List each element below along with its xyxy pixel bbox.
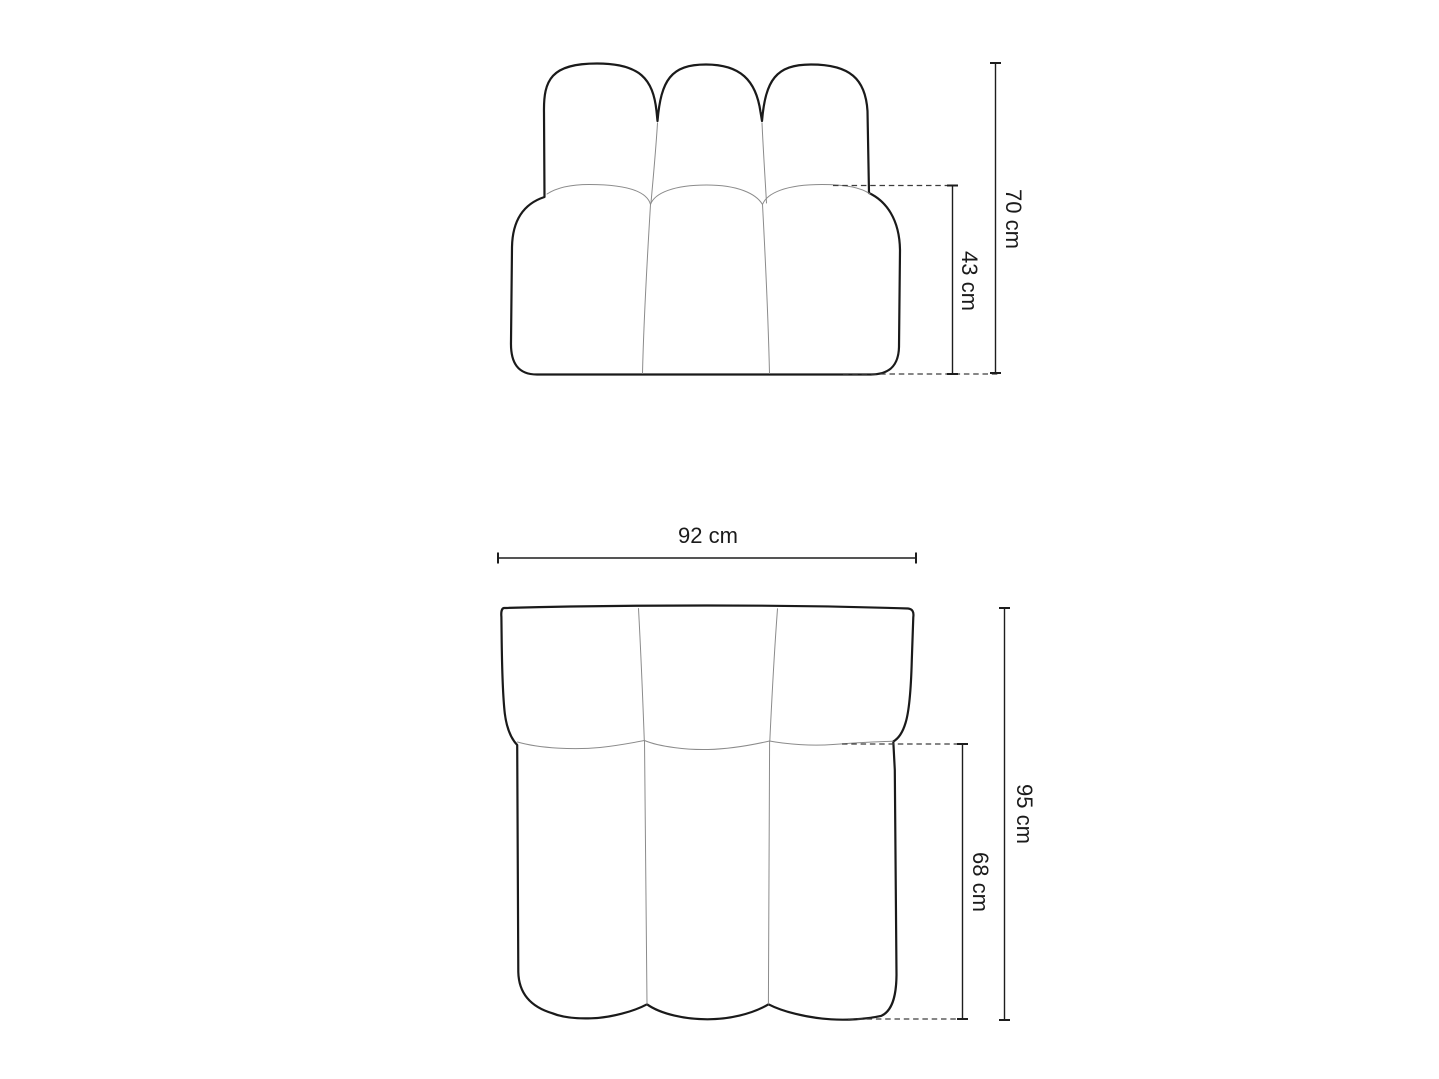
top-silhouette-outline	[501, 606, 913, 1020]
front-view	[511, 63, 1001, 375]
front-seat-height-label: 43 cm	[958, 251, 980, 311]
dimension-diagram: 70 cm 43 cm 92 cm 95 cm 68 cm	[0, 0, 1439, 1079]
top-width-dimension	[498, 553, 916, 564]
top-view	[498, 553, 1010, 1021]
top-seat-depth-label: 68 cm	[969, 852, 991, 912]
top-width-label: 92 cm	[678, 525, 738, 547]
front-total-height-label: 70 cm	[1002, 189, 1024, 249]
top-total-depth-dimension	[999, 608, 1010, 1020]
front-total-height-dimension	[990, 63, 1001, 373]
front-silhouette-outline	[511, 64, 900, 375]
top-total-depth-label: 95 cm	[1013, 784, 1035, 844]
top-seat-depth-dimension	[957, 744, 968, 1019]
